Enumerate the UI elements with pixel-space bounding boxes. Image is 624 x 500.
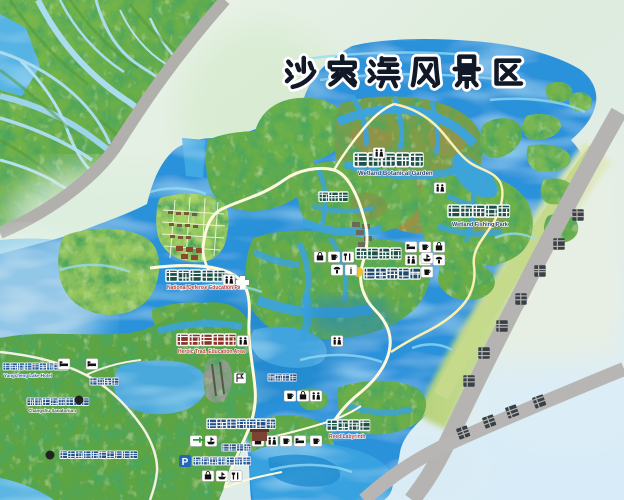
svg-text:Reed Labyrinth: Reed Labyrinth — [329, 434, 365, 440]
svg-text:Wetland Botanical Garden: Wetland Botanical Garden — [358, 171, 433, 177]
svg-text:National Defense Education Par: National Defense Education Park — [167, 285, 246, 291]
svg-text:P: P — [182, 457, 189, 468]
svg-text:Wetland Fishing Park: Wetland Fishing Park — [452, 222, 509, 228]
svg-text:Heroic Trad. Education Area: Heroic Trad. Education Area — [178, 349, 245, 355]
svg-text:Changshu Sanatorium: Changshu Sanatorium — [28, 408, 76, 413]
svg-text:Yangcheng Lake Hotel: Yangcheng Lake Hotel — [4, 373, 52, 378]
